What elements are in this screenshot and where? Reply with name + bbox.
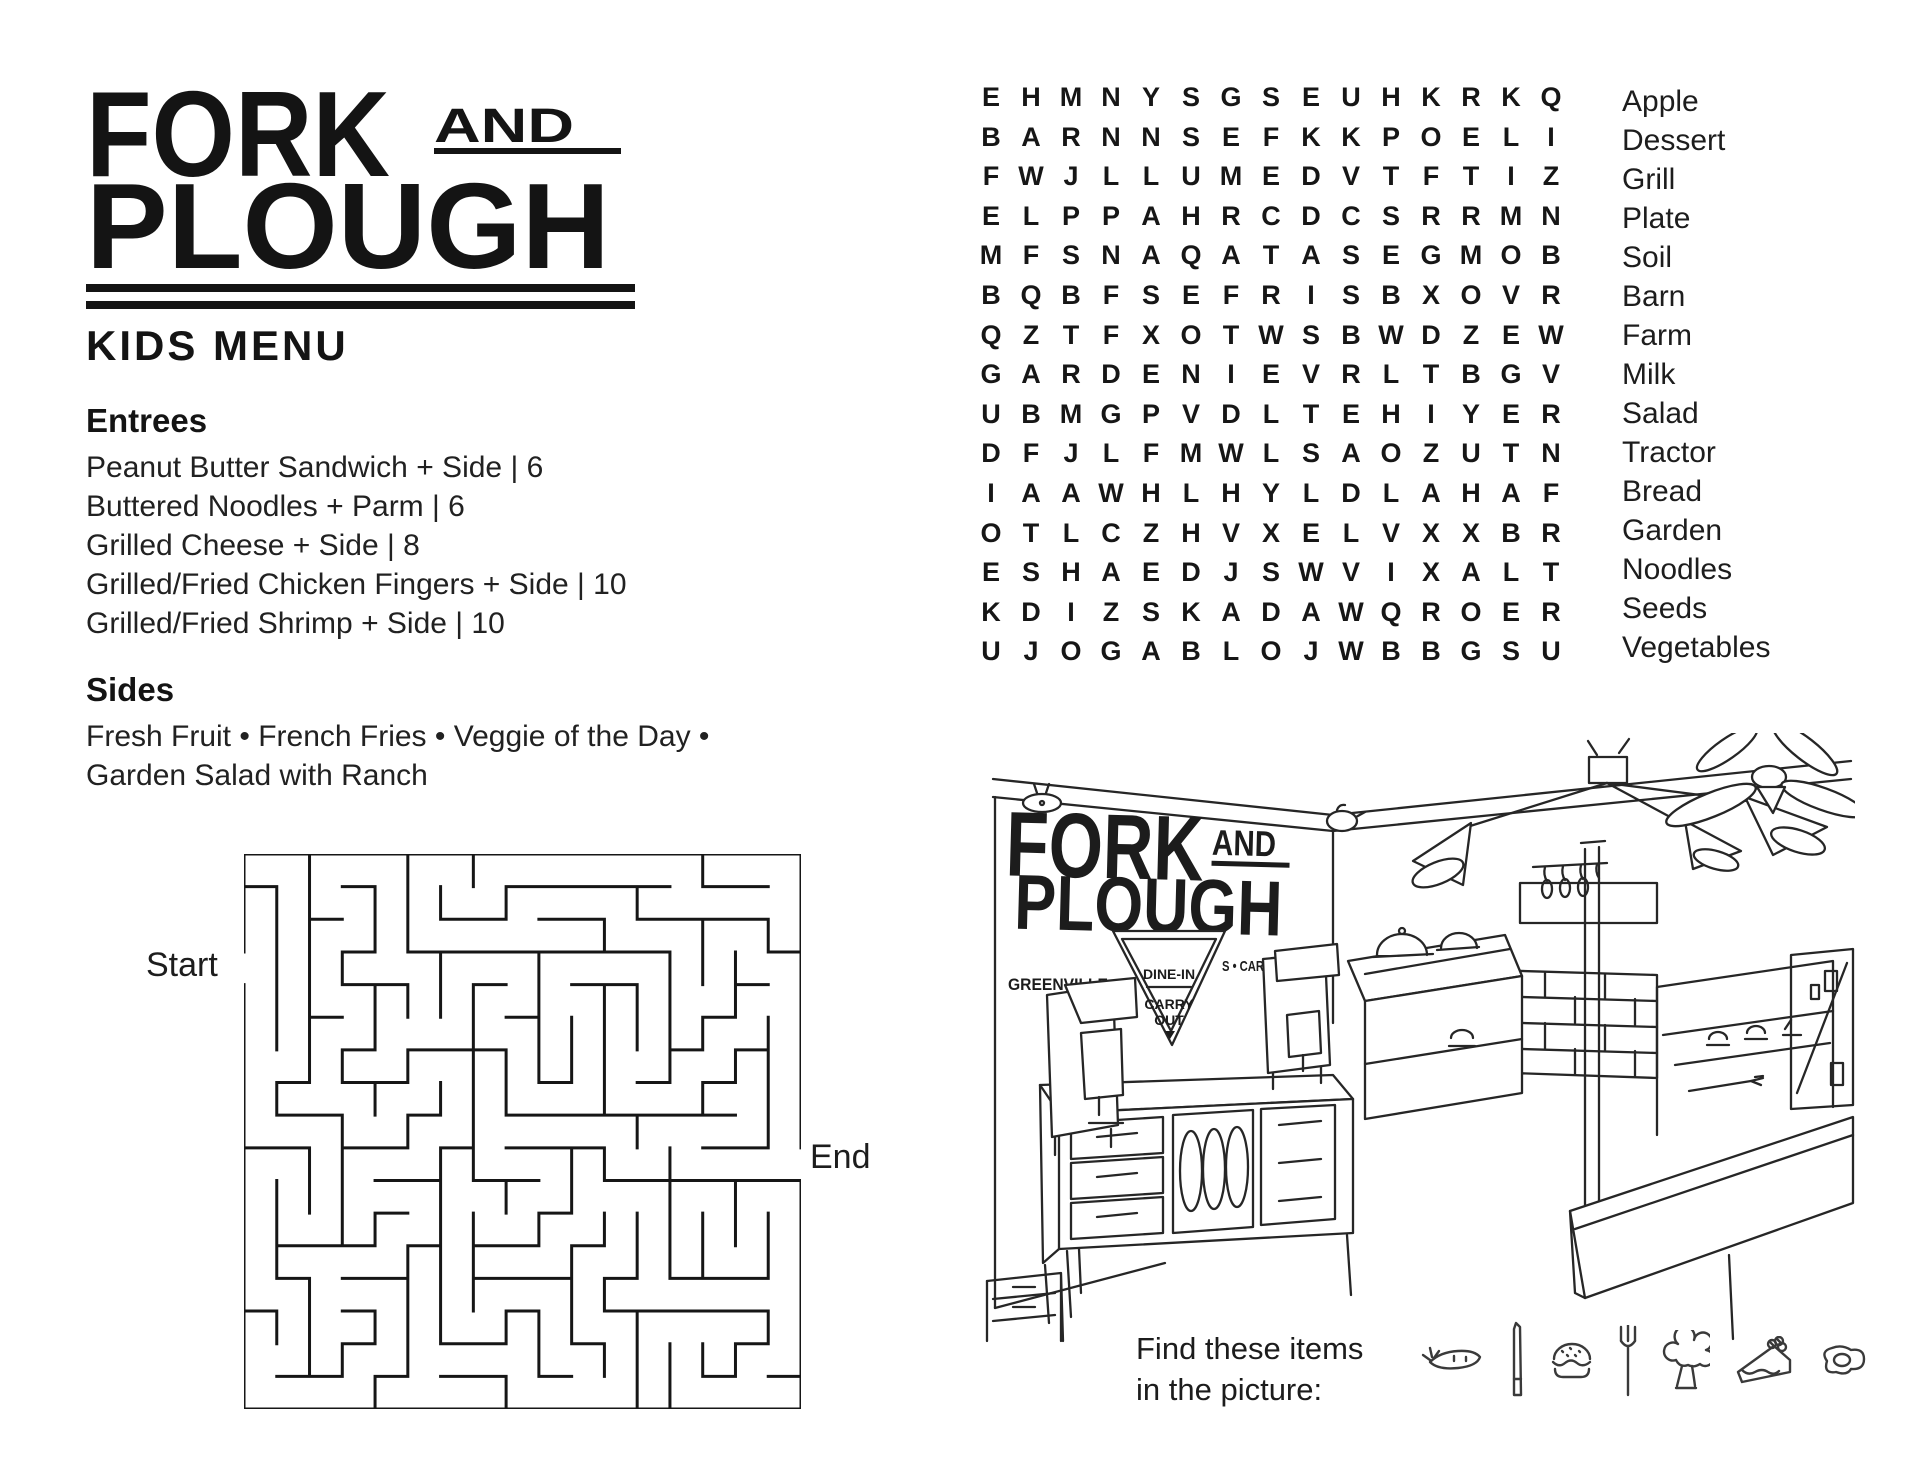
word-search-letter: L	[1491, 553, 1531, 593]
word-search-letter: R	[1251, 276, 1291, 316]
word-search-letter: H	[1011, 78, 1051, 118]
word-search-letter: X	[1131, 316, 1171, 356]
word-search-letter: B	[1411, 632, 1451, 672]
word-search-letter: A	[1451, 553, 1491, 593]
fried-egg-icon	[1818, 1343, 1866, 1379]
deli-case	[1348, 928, 1522, 1119]
word-search-letter: B	[1371, 276, 1411, 316]
word-search-letter: H	[1131, 474, 1171, 514]
logo-rule-1	[86, 284, 635, 292]
find-items-icons	[1420, 1318, 1866, 1404]
word-search-letter: G	[1411, 236, 1451, 276]
word-list-item: Soil	[1622, 238, 1770, 277]
find-items-line1: Find these items	[1136, 1328, 1363, 1369]
word-search-letter: N	[1091, 78, 1131, 118]
sides-line: Garden Salad with Ranch	[86, 756, 726, 795]
word-search-letter: E	[1251, 157, 1291, 197]
word-search-letter: U	[971, 632, 1011, 672]
word-search-letter: E	[971, 553, 1011, 593]
word-search-letter: E	[1451, 118, 1491, 158]
word-search-row: EHMNYSGSEUHKRKQ	[971, 78, 1571, 118]
carrot-icon	[1420, 1342, 1484, 1380]
maze	[244, 854, 801, 1409]
word-search-letter: K	[1411, 78, 1451, 118]
word-search-letter: S	[1171, 118, 1211, 158]
word-search-row: ELPPAHRCDCSRRMN	[971, 197, 1571, 237]
word-search-letter: T	[1451, 157, 1491, 197]
word-list-item: Seeds	[1622, 589, 1770, 628]
word-search-letter: E	[1491, 395, 1531, 435]
word-list-item: Salad	[1622, 394, 1770, 433]
word-search-letter: X	[1411, 553, 1451, 593]
word-search-letter: L	[1371, 474, 1411, 514]
word-list-item: Barn	[1622, 277, 1770, 316]
word-search-letter: U	[1331, 78, 1371, 118]
word-search-letter: E	[1331, 395, 1371, 435]
word-search-letter: H	[1211, 474, 1251, 514]
word-search-letter: R	[1411, 593, 1451, 633]
word-search-letter: W	[1091, 474, 1131, 514]
word-search-letter: S	[1131, 276, 1171, 316]
word-search-letter: J	[1051, 157, 1091, 197]
menu-column: KIDS MENU Entrees Peanut Butter Sandwich…	[86, 322, 726, 795]
drink-dispenser-right	[1263, 944, 1339, 1089]
word-search-letter: T	[1371, 157, 1411, 197]
restaurant-illustration: FORK AND PLOUGH GREENVILLE S • CAR DINE-…	[985, 733, 1855, 1343]
wall-logo-and: AND	[1212, 822, 1277, 865]
sign-line-2: CARRY	[1144, 996, 1194, 1012]
word-search-letter: Y	[1131, 78, 1171, 118]
word-search-letter: U	[1531, 632, 1571, 672]
maze-walls	[244, 854, 801, 1409]
word-search-letter: S	[1331, 276, 1371, 316]
word-list-item: Garden	[1622, 511, 1770, 550]
word-search-letter: R	[1451, 78, 1491, 118]
word-search-letter: T	[1211, 316, 1251, 356]
shelf-frame	[1791, 949, 1853, 1109]
word-search-row: IAAWHLHYLDLAHAF	[971, 474, 1571, 514]
word-search-letter: D	[1331, 474, 1371, 514]
word-search-letter: Q	[971, 316, 1011, 356]
word-search-letter: E	[1291, 514, 1331, 554]
word-search-letter: E	[971, 78, 1011, 118]
word-search-letter: E	[1131, 553, 1171, 593]
word-list-item: Farm	[1622, 316, 1770, 355]
word-search-letter: C	[1331, 197, 1371, 237]
word-search-letter: F	[1011, 236, 1051, 276]
word-list-item: Milk	[1622, 355, 1770, 394]
word-search-letter: H	[1371, 395, 1411, 435]
word-search-letter: O	[1451, 593, 1491, 633]
word-search-letter: G	[971, 355, 1011, 395]
maze-start-label: Start	[146, 946, 218, 985]
word-search-letter: A	[1131, 197, 1171, 237]
word-search-letter: S	[1051, 236, 1091, 276]
word-search-letter: R	[1531, 395, 1571, 435]
word-list-item: Vegetables	[1622, 628, 1770, 667]
word-search-letter: K	[971, 593, 1011, 633]
brand-word-plough: PLOUGH	[86, 158, 610, 294]
word-list-item: Apple	[1622, 82, 1770, 121]
word-search-letter: G	[1091, 632, 1131, 672]
word-search-letter: D	[1251, 593, 1291, 633]
word-search-letter: S	[1011, 553, 1051, 593]
word-search-letter: T	[1051, 316, 1091, 356]
word-search-letter: Z	[1411, 434, 1451, 474]
word-search-letter: F	[1131, 434, 1171, 474]
word-search-letter: D	[1291, 157, 1331, 197]
word-search-letter: V	[1371, 514, 1411, 554]
entrees-list: Peanut Butter Sandwich + Side | 6Buttere…	[86, 448, 726, 643]
word-search-letter: H	[1171, 197, 1211, 237]
word-search-letter: H	[1451, 474, 1491, 514]
word-search-letter: B	[1051, 276, 1091, 316]
word-search-letter: Z	[1011, 316, 1051, 356]
brand-word-and: AND	[434, 100, 574, 153]
entree-item: Grilled/Fried Shrimp + Side | 10	[86, 604, 726, 643]
word-list-item: Noodles	[1622, 550, 1770, 589]
burger-icon	[1550, 1339, 1594, 1383]
word-search-letter: A	[1091, 553, 1131, 593]
word-search-letter: B	[971, 118, 1011, 158]
word-search-letter: O	[1171, 316, 1211, 356]
cake-slice-icon	[1734, 1336, 1794, 1386]
word-search-letter: N	[1531, 434, 1571, 474]
word-search-letter: R	[1051, 355, 1091, 395]
word-search-letter: R	[1531, 276, 1571, 316]
kids-menu-page: FORK AND PLOUGH KIDS MENU Entrees Peanut…	[0, 0, 1920, 1484]
entree-item: Buttered Noodles + Parm | 6	[86, 487, 726, 526]
brand-logo: FORK AND PLOUGH	[86, 80, 638, 316]
word-search-letter: K	[1491, 78, 1531, 118]
word-search-letter: A	[1011, 355, 1051, 395]
word-search-letter: T	[1411, 355, 1451, 395]
word-search-letter: J	[1011, 632, 1051, 672]
word-search-letter: I	[1491, 157, 1531, 197]
menu-board	[1520, 863, 1657, 923]
word-search-letter: Q	[1171, 236, 1211, 276]
word-search-letter: P	[1131, 395, 1171, 435]
word-search-letter: W	[1251, 316, 1291, 356]
word-search-letter: K	[1331, 118, 1371, 158]
word-search-letter: R	[1051, 118, 1091, 158]
word-search-letter: I	[1211, 355, 1251, 395]
foreground-table	[1570, 1117, 1853, 1339]
word-search-letter: L	[1051, 514, 1091, 554]
word-search-letter: S	[1331, 236, 1371, 276]
word-search-letter: W	[1011, 157, 1051, 197]
word-search-letter: M	[1051, 78, 1091, 118]
word-search-letter: G	[1211, 78, 1251, 118]
word-search-letter: J	[1291, 632, 1331, 672]
word-search-letter: S	[1291, 316, 1331, 356]
word-search-letter: N	[1131, 118, 1171, 158]
word-search-letter: E	[1291, 78, 1331, 118]
word-search-letter: W	[1531, 316, 1571, 356]
word-search-letter: L	[1251, 434, 1291, 474]
word-search-letter: O	[1411, 118, 1451, 158]
wall-state-text: S • CAR	[1222, 958, 1264, 975]
word-search-letter: U	[1451, 434, 1491, 474]
word-search-row: DFJLFMWLSAOZUTN	[971, 434, 1571, 474]
word-search-letter: X	[1411, 276, 1451, 316]
entree-item: Grilled/Fried Chicken Fingers + Side | 1…	[86, 565, 726, 604]
word-search-letter: A	[1011, 118, 1051, 158]
word-search-letter: A	[1291, 236, 1331, 276]
word-search-letter: F	[1091, 276, 1131, 316]
word-search-letter: X	[1451, 514, 1491, 554]
word-search-letter: P	[1051, 197, 1091, 237]
word-search-letter: H	[1371, 78, 1411, 118]
word-search-letter: B	[1331, 316, 1371, 356]
word-search-letter: E	[1171, 276, 1211, 316]
word-search-letter: I	[1531, 118, 1571, 158]
word-list-item: Dessert	[1622, 121, 1770, 160]
word-search-letter: W	[1291, 553, 1331, 593]
word-search-letter: Y	[1451, 395, 1491, 435]
word-search-letter: U	[971, 395, 1011, 435]
word-search-row: OTLCZHVXELVXXBR	[971, 514, 1571, 554]
word-search-letter: I	[1291, 276, 1331, 316]
word-search-letter: F	[1211, 276, 1251, 316]
fork-icon	[1618, 1325, 1638, 1397]
word-search-letter: I	[971, 474, 1011, 514]
word-search-letter: P	[1091, 197, 1131, 237]
word-search-letter: V	[1491, 276, 1531, 316]
word-search-letter: B	[1451, 355, 1491, 395]
word-search-letter: F	[1011, 434, 1051, 474]
word-search-letter: Z	[1451, 316, 1491, 356]
word-search-letter: L	[1091, 157, 1131, 197]
sign-line-3: OUT	[1154, 1012, 1184, 1028]
entrees-heading: Entrees	[86, 402, 726, 440]
word-search-letter: P	[1371, 118, 1411, 158]
word-search-letter: B	[1531, 236, 1571, 276]
word-search-grid: EHMNYSGSEUHKRKQBARNNSEFKKPOELIFWJLLUMEDV…	[971, 78, 1571, 672]
word-search-row: MFSNAQATASEGMOB	[971, 236, 1571, 276]
ceiling-ornament-right	[1327, 805, 1365, 831]
word-search-letter: D	[1211, 395, 1251, 435]
word-search-row: UJOGABLOJWBBGSU	[971, 632, 1571, 672]
word-search-letter: T	[1011, 514, 1051, 554]
word-search-letter: F	[971, 157, 1011, 197]
word-search-letter: I	[1051, 593, 1091, 633]
word-search-letter: L	[1331, 514, 1371, 554]
word-search-letter: H	[1171, 514, 1211, 554]
word-search-letter: O	[1251, 632, 1291, 672]
word-search-letter: E	[1211, 118, 1251, 158]
entree-item: Peanut Butter Sandwich + Side | 6	[86, 448, 726, 487]
word-search-letter: X	[1411, 514, 1451, 554]
word-search-letter: K	[1171, 593, 1211, 633]
word-search-letter: Z	[1131, 514, 1171, 554]
word-search-letter: L	[1211, 632, 1251, 672]
sign-line-1: DINE-IN	[1143, 966, 1195, 982]
word-search-letter: L	[1251, 395, 1291, 435]
find-items-line2: in the picture:	[1136, 1369, 1363, 1410]
word-search-letter: F	[1531, 474, 1571, 514]
word-search-row: FWJLLUMEDVTFTIZ	[971, 157, 1571, 197]
word-search-letter: B	[1171, 632, 1211, 672]
word-search-letter: I	[1371, 553, 1411, 593]
entree-item: Grilled Cheese + Side | 8	[86, 526, 726, 565]
word-search-letter: D	[1411, 316, 1451, 356]
word-search-letter: A	[1331, 434, 1371, 474]
word-search-letter: R	[1531, 593, 1571, 633]
word-search-letter: O	[971, 514, 1011, 554]
word-search-letter: T	[1491, 434, 1531, 474]
word-search-letter: W	[1371, 316, 1411, 356]
word-search-letter: M	[1491, 197, 1531, 237]
word-search-letter: M	[1171, 434, 1211, 474]
word-search-letter: Q	[1011, 276, 1051, 316]
word-search-row: BARNNSEFKKPOELI	[971, 118, 1571, 158]
word-search-letter: E	[1131, 355, 1171, 395]
word-search-word-list: AppleDessertGrillPlateSoilBarnFarmMilkSa…	[1622, 82, 1770, 667]
word-search-letter: L	[1371, 355, 1411, 395]
word-search-letter: Y	[1251, 474, 1291, 514]
knife-icon	[1508, 1321, 1526, 1401]
word-search-letter: B	[1011, 395, 1051, 435]
word-search-letter: B	[1491, 514, 1531, 554]
word-list-item: Tractor	[1622, 433, 1770, 472]
word-search-letter: L	[1491, 118, 1531, 158]
word-search-letter: L	[1091, 434, 1131, 474]
word-search-letter: L	[1011, 197, 1051, 237]
word-search-letter: S	[1291, 434, 1331, 474]
word-search-letter: S	[1251, 78, 1291, 118]
word-search-letter: R	[1451, 197, 1491, 237]
sides-line: Fresh Fruit • French Fries • Veggie of t…	[86, 717, 726, 756]
word-search-letter: F	[1411, 157, 1451, 197]
word-search-letter: D	[1011, 593, 1051, 633]
word-search-letter: E	[1371, 236, 1411, 276]
word-search-letter: W	[1211, 434, 1251, 474]
word-search-letter: M	[1211, 157, 1251, 197]
word-search-letter: E	[1491, 593, 1531, 633]
word-search-letter: A	[1491, 474, 1531, 514]
word-search-letter: U	[1171, 157, 1211, 197]
word-search-letter: G	[1491, 355, 1531, 395]
word-search-letter: E	[1491, 316, 1531, 356]
sides-heading: Sides	[86, 671, 726, 709]
word-search-letter: V	[1211, 514, 1251, 554]
word-search-letter: O	[1451, 276, 1491, 316]
word-search-letter: V	[1331, 553, 1371, 593]
word-search-letter: S	[1171, 78, 1211, 118]
word-search-letter: R	[1331, 355, 1371, 395]
logo-rule-2	[86, 301, 635, 309]
word-list-item: Grill	[1622, 160, 1770, 199]
find-items-label: Find these items in the picture:	[1136, 1328, 1363, 1410]
word-search-letter: I	[1411, 395, 1451, 435]
word-search-letter: L	[1131, 157, 1171, 197]
word-list-item: Bread	[1622, 472, 1770, 511]
word-search-letter: Q	[1371, 593, 1411, 633]
word-search-letter: M	[971, 236, 1011, 276]
word-search-letter: A	[1291, 593, 1331, 633]
word-search-letter: G	[1451, 632, 1491, 672]
word-search-letter: N	[1091, 118, 1131, 158]
word-search-letter: S	[1491, 632, 1531, 672]
word-list-item: Plate	[1622, 199, 1770, 238]
word-search-letter: T	[1531, 553, 1571, 593]
word-search-letter: S	[1131, 593, 1171, 633]
word-search-letter: T	[1291, 395, 1331, 435]
word-search-letter: L	[1171, 474, 1211, 514]
word-search-letter: A	[1211, 593, 1251, 633]
word-search-letter: J	[1211, 553, 1251, 593]
word-search-letter: V	[1531, 355, 1571, 395]
maze-end-label: End	[810, 1138, 871, 1177]
word-search-letter: S	[1371, 197, 1411, 237]
word-search-letter: A	[1011, 474, 1051, 514]
word-search-letter: D	[1291, 197, 1331, 237]
word-search-row: UBMGPVDLTEHIYER	[971, 395, 1571, 435]
word-search-letter: L	[1291, 474, 1331, 514]
word-search-letter: A	[1131, 632, 1171, 672]
word-search-letter: F	[1091, 316, 1131, 356]
word-search-letter: O	[1491, 236, 1531, 276]
word-search-letter: F	[1251, 118, 1291, 158]
word-search-letter: H	[1051, 553, 1091, 593]
word-search-letter: R	[1211, 197, 1251, 237]
broccoli-icon	[1662, 1330, 1710, 1392]
word-search-letter: S	[1251, 553, 1291, 593]
word-search-letter: B	[1371, 632, 1411, 672]
word-search-letter: B	[971, 276, 1011, 316]
word-search-letter: V	[1291, 355, 1331, 395]
word-search-row: QZTFXOTWSBWDZEW	[971, 316, 1571, 356]
and-underline	[434, 148, 621, 154]
word-search-row: KDIZSKADAWQROER	[971, 593, 1571, 633]
word-search-letter: C	[1091, 514, 1131, 554]
word-search-letter: V	[1331, 157, 1371, 197]
word-search-letter: M	[1051, 395, 1091, 435]
word-search-letter: G	[1091, 395, 1131, 435]
word-search-letter: N	[1531, 197, 1571, 237]
word-search-letter: W	[1331, 593, 1371, 633]
word-search-letter: Z	[1531, 157, 1571, 197]
word-search-letter: O	[1371, 434, 1411, 474]
word-search-letter: M	[1451, 236, 1491, 276]
word-search-letter: D	[1091, 355, 1131, 395]
word-search-letter: V	[1171, 395, 1211, 435]
word-search-letter: A	[1131, 236, 1171, 276]
word-search-letter: J	[1051, 434, 1091, 474]
word-search-letter: C	[1251, 197, 1291, 237]
word-search-letter: Z	[1091, 593, 1131, 633]
word-search-letter: A	[1051, 474, 1091, 514]
word-search-letter: E	[1251, 355, 1291, 395]
word-search-row: BQBFSEFRISBXOVR	[971, 276, 1571, 316]
word-search-letter: X	[1251, 514, 1291, 554]
word-search-letter: A	[1411, 474, 1451, 514]
word-search-letter: R	[1411, 197, 1451, 237]
word-search-letter: D	[971, 434, 1011, 474]
word-search-letter: W	[1331, 632, 1371, 672]
word-search-letter: Q	[1531, 78, 1571, 118]
page-title: KIDS MENU	[86, 322, 726, 370]
word-search-letter: N	[1171, 355, 1211, 395]
word-search-row: ESHAEDJSWVIXALT	[971, 553, 1571, 593]
word-search-letter: K	[1291, 118, 1331, 158]
word-search-letter: N	[1091, 236, 1131, 276]
word-search-letter: A	[1211, 236, 1251, 276]
word-search-letter: D	[1171, 553, 1211, 593]
word-search-row: GARDENIEVRLTBGV	[971, 355, 1571, 395]
word-search-letter: E	[971, 197, 1011, 237]
